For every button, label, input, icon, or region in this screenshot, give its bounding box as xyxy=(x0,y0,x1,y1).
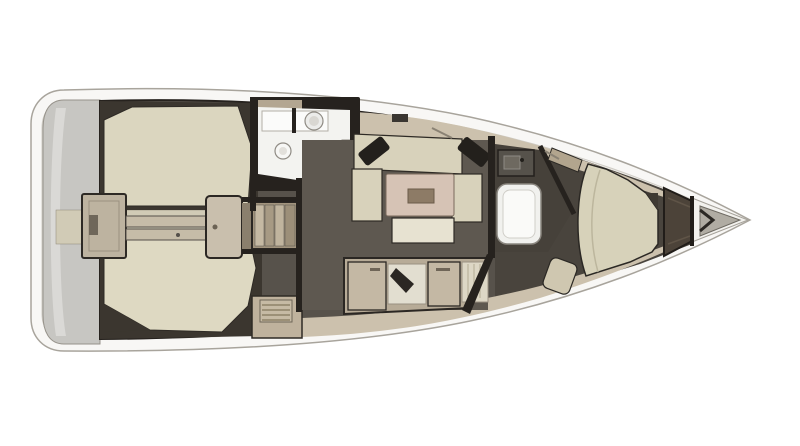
step-tread xyxy=(255,205,264,246)
fore-shower-inner xyxy=(503,190,535,238)
step-tread xyxy=(275,205,284,246)
settee-left xyxy=(352,169,382,221)
fore-head-sink xyxy=(504,156,520,169)
fore-head-faucet xyxy=(520,158,524,162)
aft-berth-top xyxy=(104,106,252,206)
aft-head-sink-small-inner xyxy=(279,147,287,155)
deck-hatch xyxy=(392,114,408,122)
walkway-rail-bottom xyxy=(126,229,208,240)
yacht-floorplan-page xyxy=(0,0,800,446)
engine-box-flange xyxy=(242,203,251,251)
engine-box xyxy=(206,196,242,258)
main-bulkhead xyxy=(488,136,495,258)
aft-head-divider xyxy=(292,108,296,133)
galley-fridge-handle xyxy=(370,268,380,271)
galley-stove-handle xyxy=(436,268,450,271)
salon-bench xyxy=(392,218,454,243)
aft-head-sink-inner xyxy=(309,116,319,126)
walkway-dot xyxy=(176,233,180,237)
step-tread xyxy=(285,205,295,246)
boat-floorplan-svg xyxy=(0,0,800,446)
wall-head-left xyxy=(250,97,256,211)
galley-fridge xyxy=(348,262,386,310)
settee-right xyxy=(452,174,482,222)
wall-salon-left xyxy=(296,178,302,312)
locker-grate xyxy=(260,300,292,322)
salon-table-insert xyxy=(408,189,434,203)
walkway-rail-top xyxy=(126,216,208,227)
wall-steps-top xyxy=(242,197,300,202)
wall-steps-bottom xyxy=(242,249,300,254)
transom-shower-box-dark xyxy=(89,215,98,235)
engine-box-dot xyxy=(213,225,218,230)
step-tread xyxy=(265,205,274,246)
